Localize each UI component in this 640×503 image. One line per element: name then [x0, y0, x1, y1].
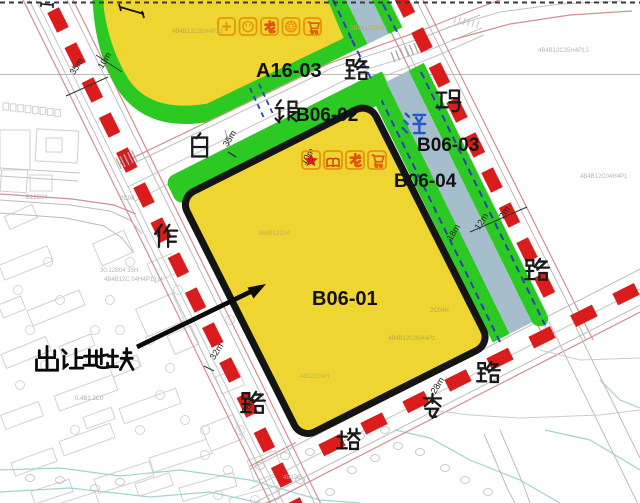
svg-text:B06-03: B06-03 — [417, 135, 479, 156]
svg-text:4B4B12C 04H4P13 H: 4B4B12C 04H4P13 H — [104, 277, 162, 283]
svg-text:4B4B12C35H4P1: 4B4B12C35H4P1 — [388, 336, 436, 342]
svg-text:2C04: 2C04 — [120, 196, 135, 202]
svg-text:B06-04: B06-04 — [394, 171, 457, 192]
svg-text:4B4B12C35H4P13: 4B4B12C35H4P13 — [172, 29, 223, 35]
svg-text:B12C04: B12C04 — [26, 195, 48, 201]
svg-text:3B4B12C04: 3B4B12C04 — [258, 231, 291, 237]
svg-text:3B4B12C04H: 3B4B12C04H — [350, 26, 387, 32]
svg-text:4B12C04H: 4B12C04H — [300, 374, 329, 380]
svg-text:4B12C: 4B12C — [283, 475, 302, 481]
svg-text:4B4B12C35H4P13: 4B4B12C35H4P13 — [538, 48, 589, 54]
svg-text:4B4B12C04H4P1: 4B4B12C04H4P1 — [580, 174, 628, 180]
svg-text:2C04H: 2C04H — [430, 308, 449, 314]
svg-text:B06-02: B06-02 — [296, 105, 358, 126]
svg-text:30.12B04 35H: 30.12B04 35H — [100, 268, 138, 274]
svg-text:0.4B1 2C0: 0.4B1 2C0 — [75, 396, 104, 402]
svg-text:A16-03: A16-03 — [256, 60, 322, 82]
svg-text:B06-01: B06-01 — [312, 288, 378, 310]
